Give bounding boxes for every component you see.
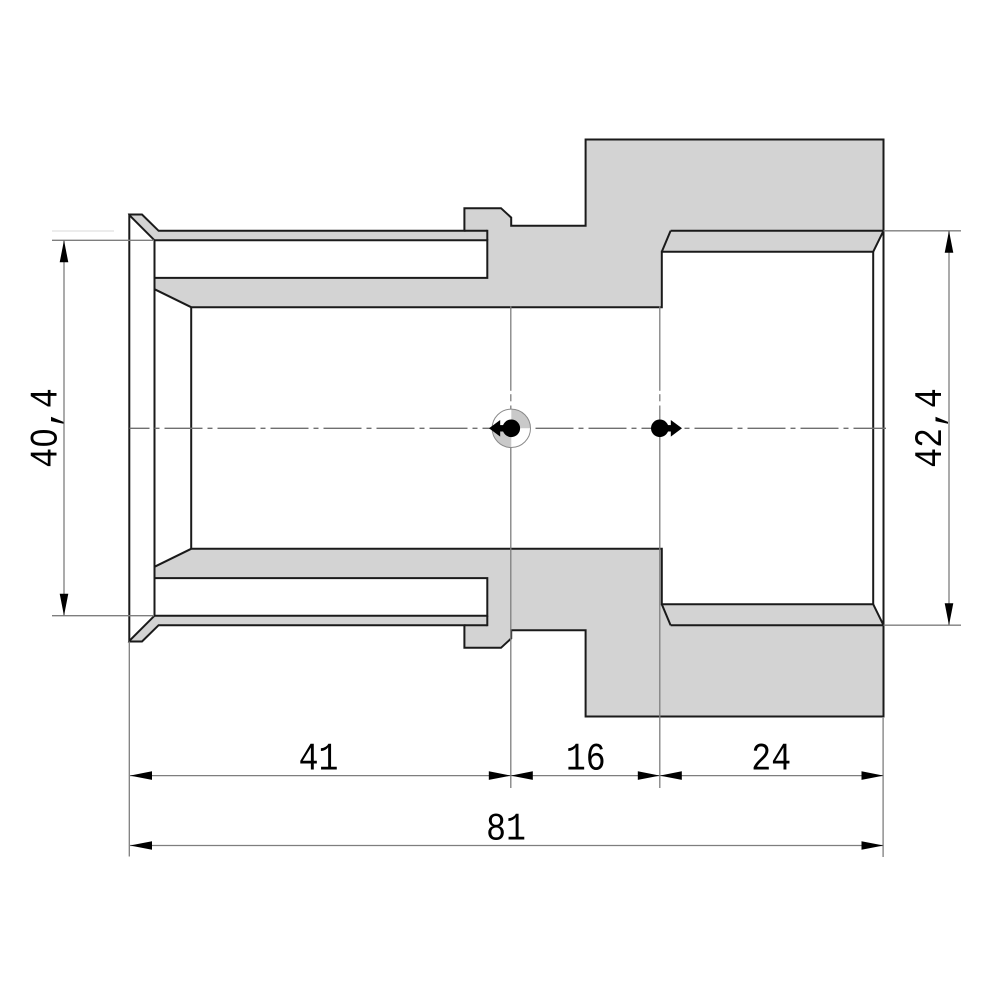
svg-text:40,4: 40,4 xyxy=(24,388,68,468)
svg-text:81: 81 xyxy=(486,807,526,851)
svg-text:42,4: 42,4 xyxy=(909,388,953,468)
svg-text:24: 24 xyxy=(751,737,791,781)
svg-text:41: 41 xyxy=(299,737,339,781)
svg-text:16: 16 xyxy=(566,737,606,781)
